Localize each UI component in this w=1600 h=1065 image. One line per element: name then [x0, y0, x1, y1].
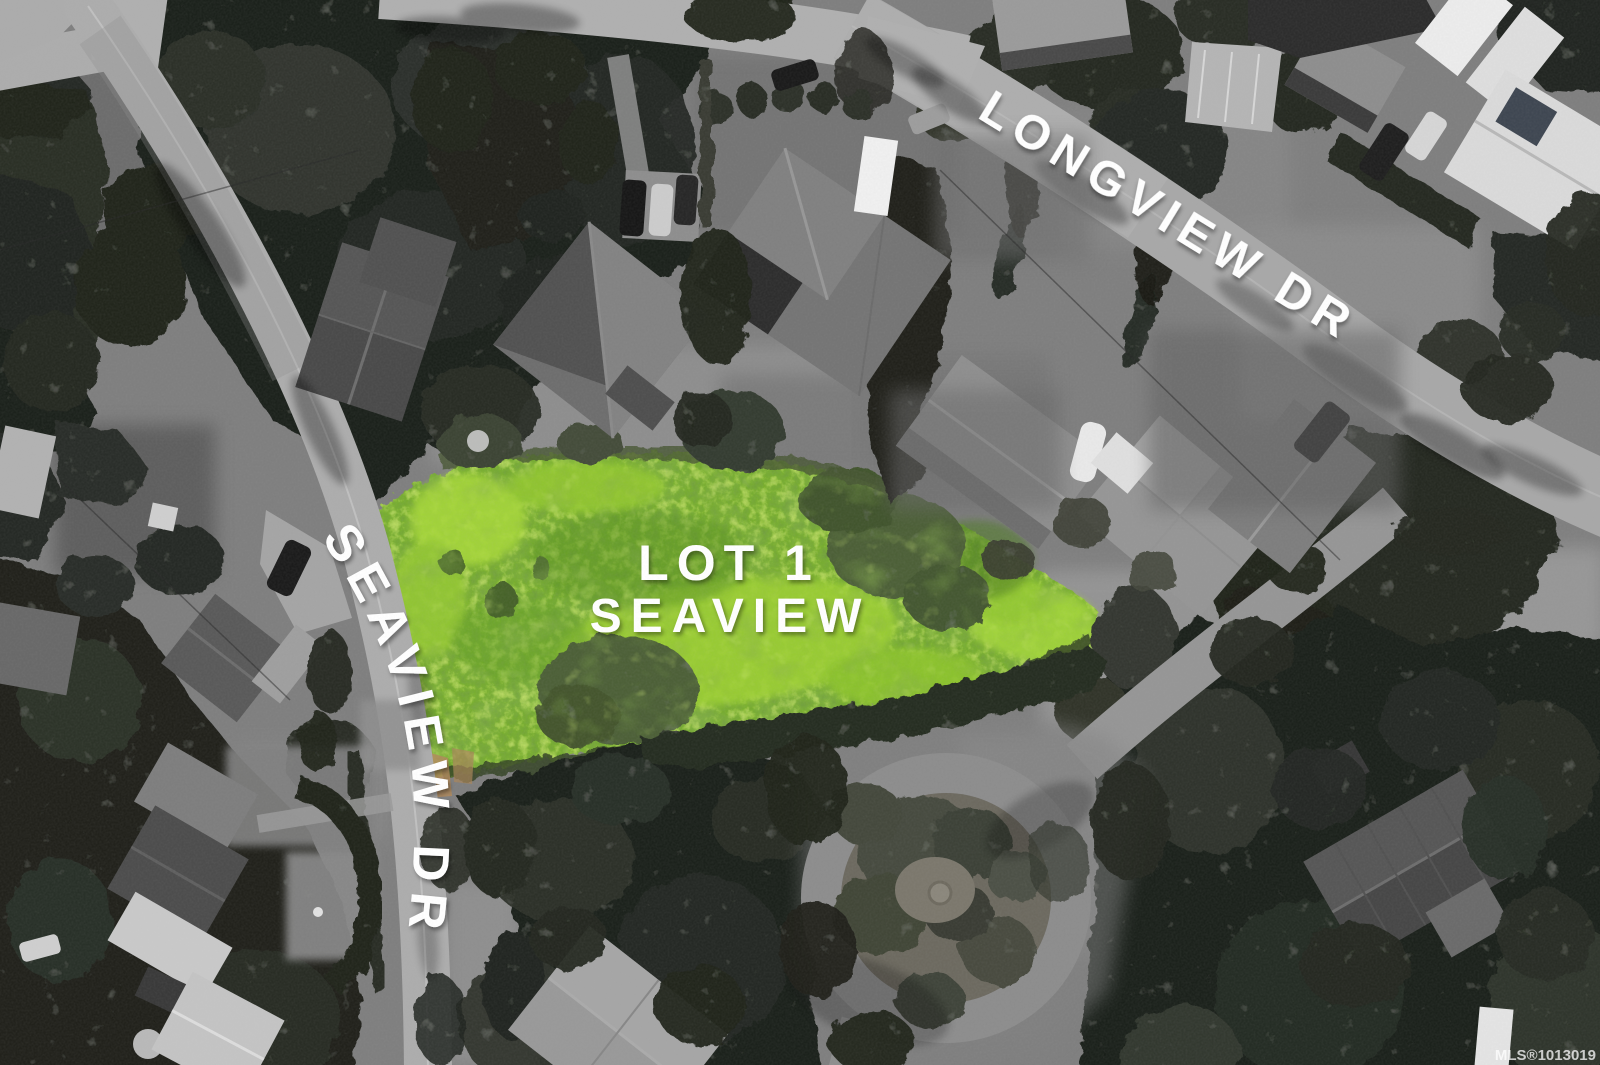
- svg-text:MLS®1013019: MLS®1013019: [1495, 1047, 1596, 1064]
